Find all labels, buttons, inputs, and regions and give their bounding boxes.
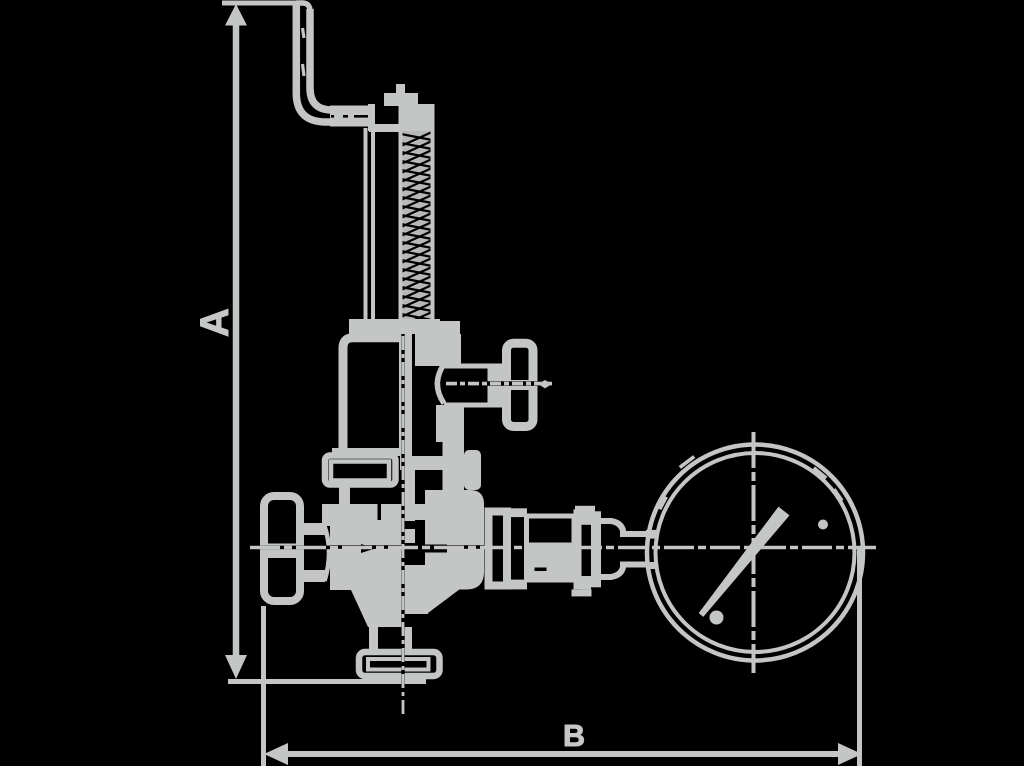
svg-text:B: B — [563, 719, 585, 753]
svg-text:A: A — [193, 308, 237, 337]
